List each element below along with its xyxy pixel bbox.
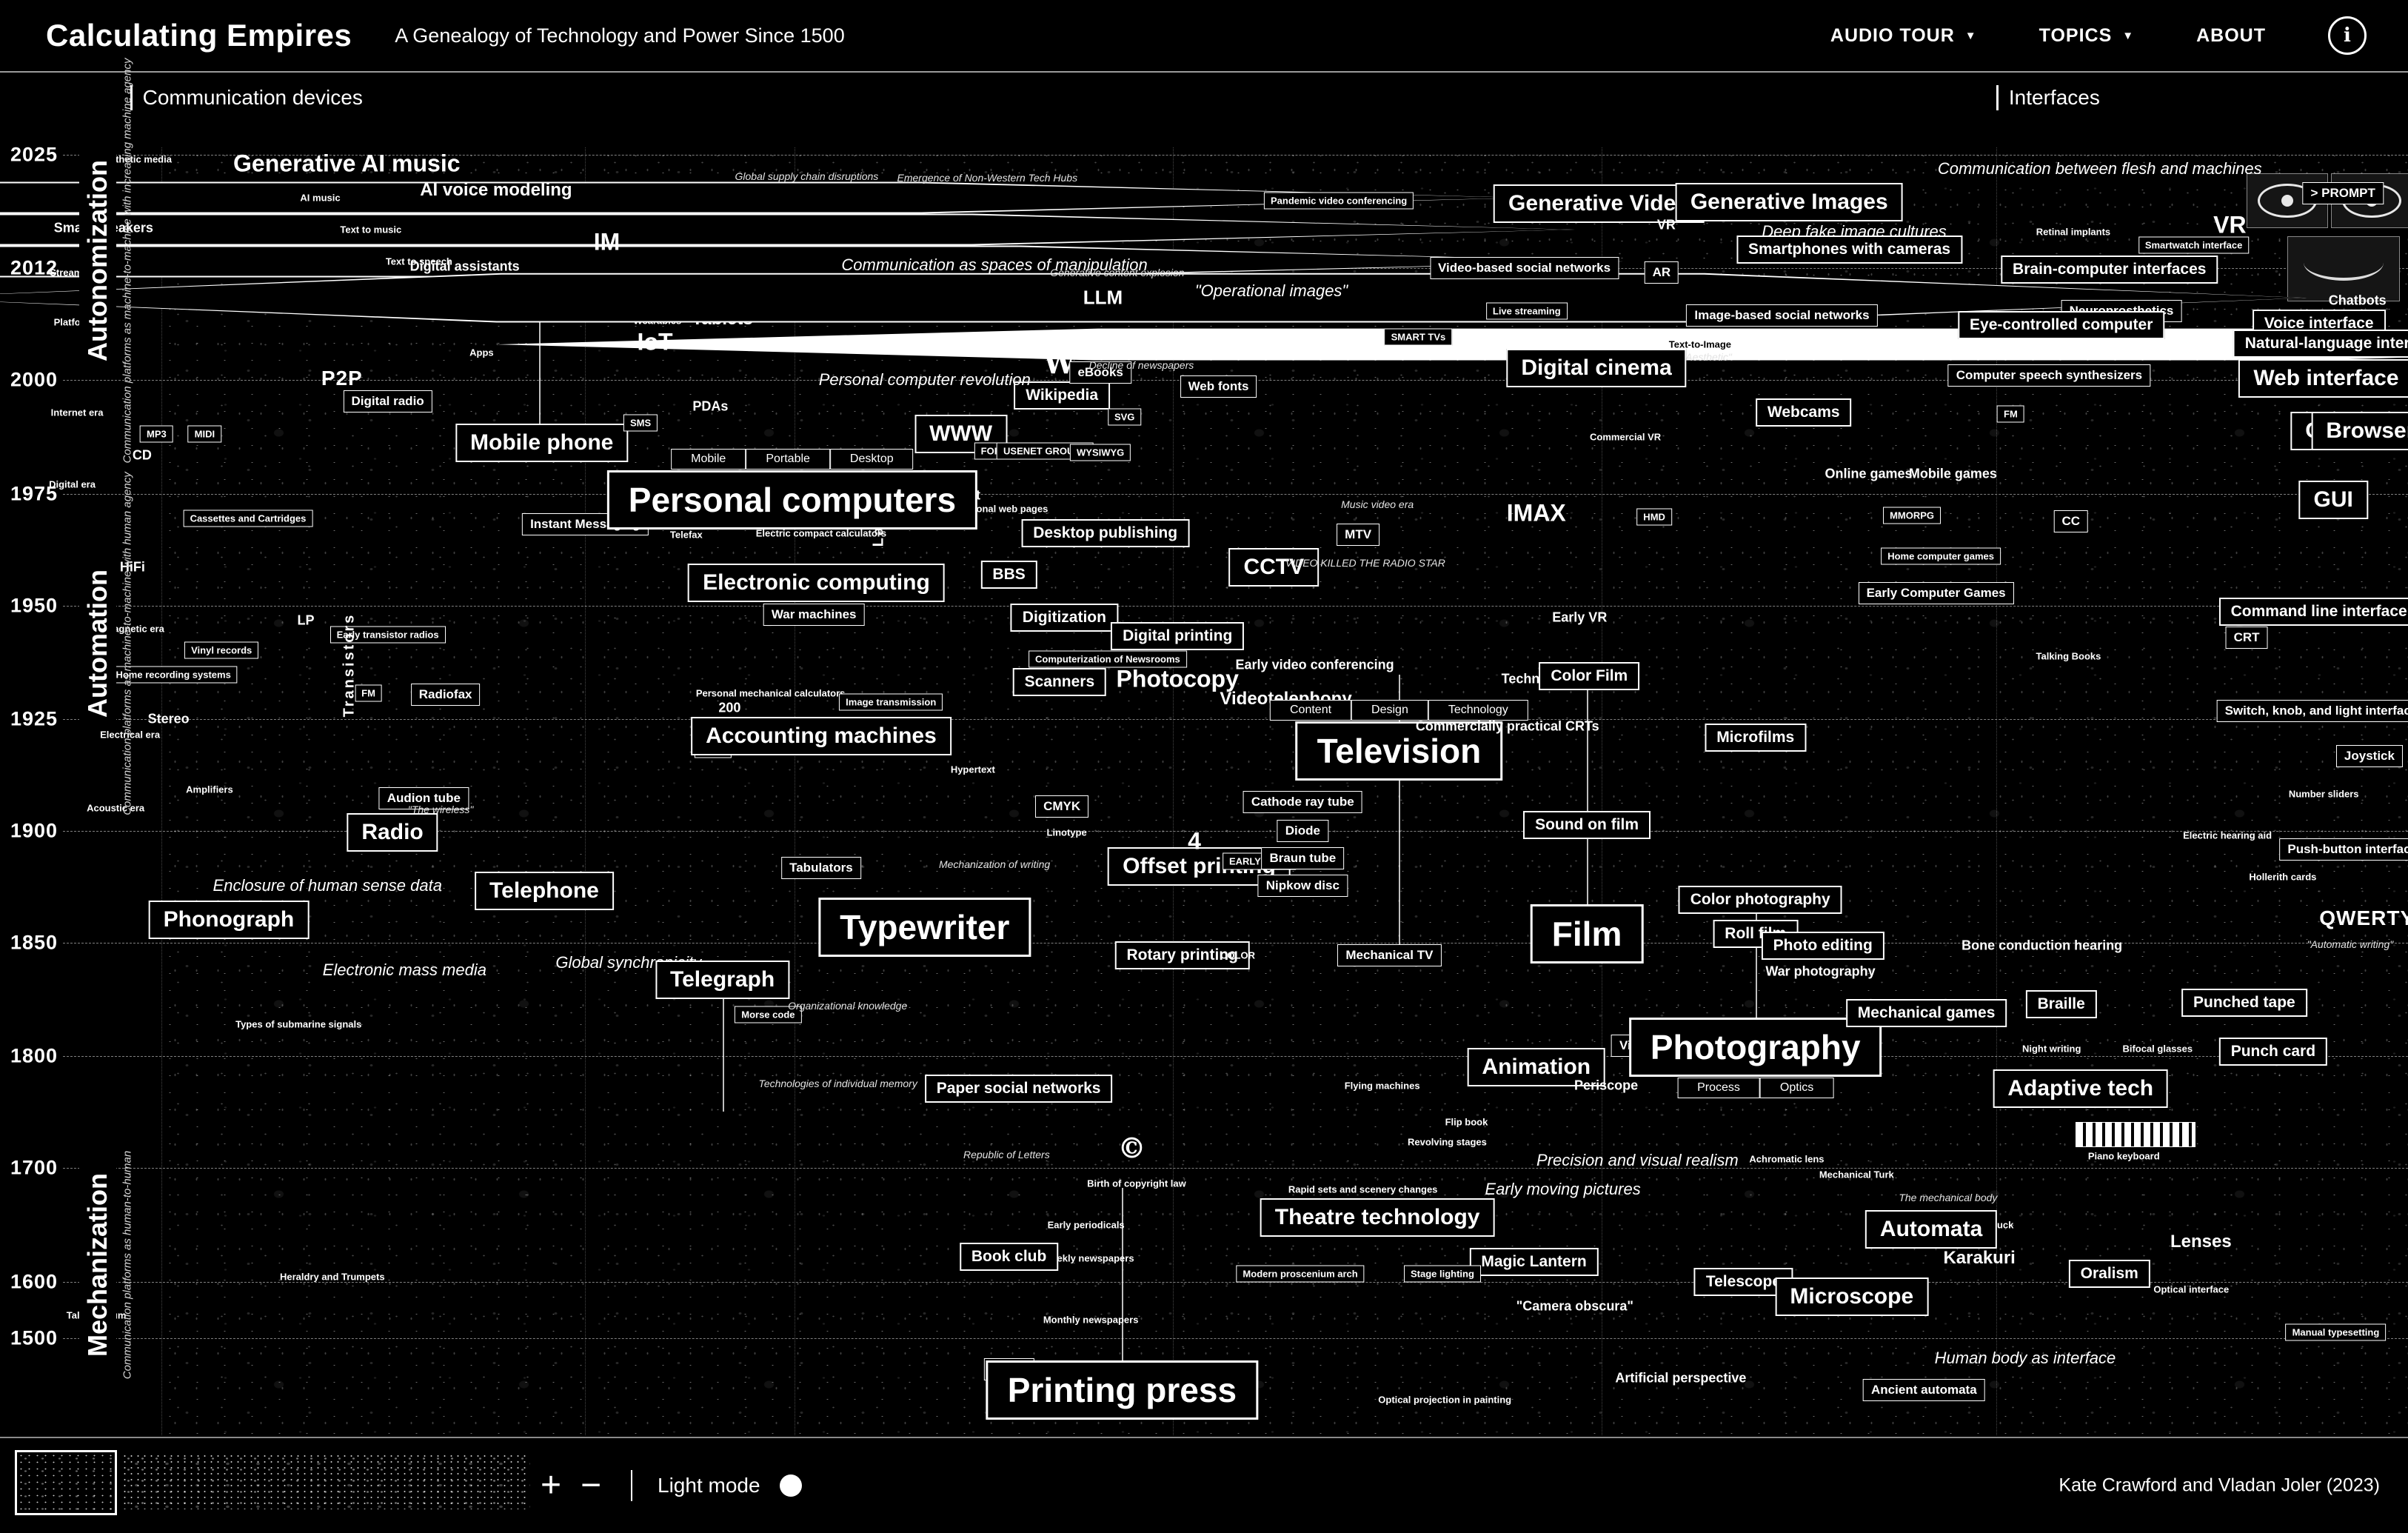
year-label-2000: 2000	[10, 369, 58, 392]
map-node-cd: CD	[133, 447, 152, 463]
map-node-bbs: BBS	[980, 561, 1037, 589]
map-node-magic-lantern: Magic Lantern	[1469, 1248, 1598, 1276]
map-node-hypertext: Hypertext	[951, 764, 995, 775]
map-node-video-killed-the-radio-star: VIDEO KILLED THE RADIO STAR	[1285, 557, 1445, 569]
map-canvas[interactable]: 2025201220001975195019251900185018001700…	[0, 0, 2408, 1533]
map-node-revolving-stages: Revolving stages	[1408, 1137, 1487, 1148]
era-subtitle-automation: Communication platforms as machine-to-ma…	[121, 472, 134, 816]
map-node-computer-speech-synthesizers: Computer speech synthesizers	[1948, 364, 2150, 387]
map-node-early-video-conferencing: Early video conferencing	[1236, 658, 1394, 673]
node-tab-optics: Optics	[1760, 1078, 1833, 1098]
map-node-telephone: Telephone	[475, 872, 614, 910]
map-node-hollerith-cards: Hollerith cards	[2249, 872, 2316, 883]
map-node-stereo: Stereo	[148, 711, 190, 727]
map-node-rapid-sets-and-scenery-changes: Rapid sets and scenery changes	[1288, 1184, 1438, 1195]
year-gridline-1925	[63, 719, 2408, 720]
map-node-retinal-implants: Retinal implants	[2036, 226, 2110, 237]
year-label-1500: 1500	[10, 1327, 58, 1350]
piano-keyboard-graphic	[2076, 1122, 2195, 1147]
map-node-diode: Diode	[1277, 820, 1328, 842]
map-node-gui: GUI	[2299, 481, 2368, 519]
map-node-bifocal-glasses: Bifocal glasses	[2122, 1043, 2193, 1054]
map-node-optical-projection-in-painting: Optical projection in painting	[1378, 1394, 1511, 1405]
map-node-electronic-computing: Electronic computing	[688, 564, 945, 602]
map-node-browsers: Browsers	[2311, 412, 2408, 450]
map-node-mtv: MTV	[1337, 524, 1379, 546]
map-node-adaptive-tech: Adaptive tech	[1993, 1069, 2168, 1108]
node-tab-desktop: Desktop	[830, 449, 914, 470]
map-node-karakuri: Karakuri	[1943, 1248, 2015, 1269]
column-divider-0	[161, 147, 162, 1435]
map-node-monthly-newspapers: Monthly newspapers	[1043, 1315, 1139, 1326]
map-node-photography: PhotographyProcessOptics	[1629, 1018, 1882, 1077]
map-node-war-photography: War photography	[1765, 964, 1875, 980]
map-node-amplifiers: Amplifiers	[186, 784, 233, 795]
toggle-circle-icon	[780, 1474, 802, 1497]
era-subtitle-mechanization: Communication platforms as human-to-huma…	[121, 1151, 134, 1379]
map-node-typewriter: Typewriter	[818, 898, 1031, 957]
minimap-thumbnail[interactable]	[121, 1453, 530, 1509]
map-node-cc: CC	[2053, 510, 2088, 532]
map-node-internet-era: Internet era	[51, 407, 104, 418]
map-node-artificial-perspective: Artificial perspective	[1615, 1370, 1746, 1386]
map-node-flip-book: Flip book	[1445, 1117, 1488, 1128]
map-node-punched-tape: Punched tape	[2181, 989, 2307, 1017]
map-node-desktop-publishing: Desktop publishing	[1021, 519, 1189, 547]
zoom-out-button[interactable]: −	[581, 1468, 601, 1503]
map-node-personal-computer-revolution: Personal computer revolution	[819, 370, 1031, 390]
year-label-1800: 1800	[10, 1045, 58, 1068]
map-node-smartphones-with-cameras: Smartphones with cameras	[1736, 236, 1962, 264]
map-node-online-games: Online games	[1825, 466, 1913, 481]
map-node-200: 200	[718, 701, 740, 716]
map-node-number-sliders: Number sliders	[2289, 789, 2359, 800]
map-node-global-supply-chain-disruptions: Global supply chain disruptions	[735, 170, 879, 182]
year-gridline-1700	[63, 1168, 2408, 1169]
footer-bar: + − Light mode Kate Crawford and Vladan …	[0, 1437, 2408, 1533]
page: Calculating Empires A Genealogy of Techn…	[0, 0, 2408, 1533]
map-node-early-computer-games: Early Computer Games	[1859, 582, 2014, 604]
map-node-manual-typesetting: Manual typesetting	[2286, 1323, 2387, 1340]
map-node-lenses: Lenses	[2170, 1232, 2232, 1252]
map-node-cathode-ray-tube: Cathode ray tube	[1243, 791, 1362, 813]
map-node-personal-mechanical-calculators: Personal mechanical calculators	[696, 687, 846, 698]
map-node-lp: LP	[297, 613, 314, 629]
map-node-glyph: ©	[1117, 1132, 1146, 1165]
map-node-commercial-vr: Commercial VR	[1590, 431, 1661, 442]
map-node-image-transmission: Image transmission	[839, 694, 943, 711]
map-node-early-moving-pictures: Early moving pictures	[1485, 1180, 1640, 1199]
map-node-nipkow-disc: Nipkow disc	[1258, 875, 1348, 897]
map-node-4: 4	[1188, 828, 1201, 855]
map-node-bone-conduction-hearing: Bone conduction hearing	[1961, 938, 2122, 954]
map-node-im: IM	[594, 229, 621, 256]
map-node-brain-computer-interfaces: Brain-computer interfaces	[2001, 255, 2218, 284]
map-node-vr: VR	[2213, 212, 2246, 239]
map-node-qwerty: QWERTY	[2319, 906, 2408, 930]
map-node-scanners: Scanners	[1013, 668, 1107, 696]
map-node-paper-social-networks: Paper social networks	[925, 1075, 1113, 1103]
map-node-linotype: Linotype	[1047, 827, 1087, 838]
map-node-mechanical-tv: Mechanical TV	[1337, 944, 1441, 966]
map-node-imax: IMAX	[1507, 500, 1566, 527]
map-node-fm: FM	[1997, 405, 2024, 422]
map-node-human-body-as-interface: Human body as interface	[1935, 1349, 2116, 1368]
map-node-accounting-machines: Accounting machines	[691, 717, 952, 755]
map-node-pdas: PDAs	[692, 398, 728, 414]
year-gridline-1600	[63, 1282, 2408, 1283]
era-subtitle-autonomization: Communication platforms as machine-to-ma…	[121, 58, 134, 463]
footer-divider	[631, 1470, 632, 1501]
node-tabs-television: ContentDesignTechnology	[1270, 700, 1528, 721]
map-node-photo-editing: Photo editing	[1762, 932, 1884, 960]
map-node-stage-lighting: Stage lighting	[1404, 1266, 1481, 1283]
map-node-radiofax: Radiofax	[411, 684, 481, 706]
map-node-printing-press: Printing press	[986, 1360, 1258, 1420]
map-node-home-computer-games: Home computer games	[1881, 548, 2001, 565]
map-node-wysiwyg: WYSIWYG	[1070, 444, 1131, 461]
map-node-push-button-interface: Push-button interface	[2279, 838, 2408, 861]
map-node-microscope: Microscope	[1775, 1277, 1928, 1316]
map-node-modern-proscenium-arch: Modern proscenium arch	[1236, 1266, 1364, 1283]
map-node-early-vr: Early VR	[1552, 610, 1607, 626]
map-node-smart-tvs: SMART TVs	[1385, 329, 1453, 346]
map-node-theatre-technology: Theatre technology	[1260, 1198, 1495, 1237]
map-node-communication-between-flesh-and-machines: Communication between flesh and machines	[1938, 159, 2262, 178]
map-node-webcams: Webcams	[1756, 398, 1852, 427]
map-node-digital-assistants: Digital assistants	[410, 259, 520, 275]
node-tab-design: Design	[1351, 700, 1428, 721]
map-node-braille: Braille	[2026, 990, 2097, 1018]
map-node-sms: SMS	[623, 415, 658, 432]
map-node-automatic-writing: "Automatic writing"	[2307, 938, 2394, 950]
map-node-sound-on-film: Sound on film	[1523, 811, 1651, 839]
map-node-telegraph: Telegraph	[655, 961, 789, 999]
map-node-precision-and-visual-realism: Precision and visual realism	[1536, 1151, 1739, 1170]
map-node-mp3: MP3	[140, 425, 173, 442]
map-node-color-photography: Color photography	[1679, 886, 1842, 914]
year-label-1900: 1900	[10, 819, 58, 842]
map-node-phonograph: Phonograph	[149, 901, 310, 939]
year-label-1975: 1975	[10, 482, 58, 505]
map-node-digital-radio: Digital radio	[343, 390, 432, 413]
map-node-apps: Apps	[469, 347, 494, 358]
map-node-p2p: P2P	[321, 367, 363, 390]
map-node-oralism: Oralism	[2069, 1260, 2150, 1288]
map-node-video-based-social-networks: Video-based social networks	[1430, 257, 1619, 279]
map-node-automata: Automata	[1865, 1210, 1997, 1249]
map-node-book-club: Book club	[960, 1243, 1059, 1271]
map-node-joystick: Joystick	[2336, 745, 2403, 767]
map-node-vinyl-records: Vinyl records	[184, 641, 258, 658]
year-gridline-1950	[63, 606, 2408, 607]
map-node-command-line-interface: Command line interface	[2219, 598, 2408, 626]
map-node-acoustic-era: Acoustic era	[87, 802, 144, 813]
map-node-early-periodicals: Early periodicals	[1048, 1219, 1125, 1230]
map-node-telefax: Telefax	[670, 530, 703, 541]
map-node-natural-language-interface: Natural-language interface	[2233, 330, 2408, 358]
light-mode-toggle[interactable]: Light mode	[658, 1474, 802, 1497]
map-node-prompt: > PROMPT	[2303, 182, 2384, 204]
light-mode-label: Light mode	[658, 1474, 760, 1497]
map-node-pandemic-video-conferencing: Pandemic video conferencing	[1264, 193, 1414, 210]
map-node-punch-card: Punch card	[2219, 1038, 2327, 1066]
map-node-mobile-games: Mobile games	[1909, 466, 1997, 481]
map-node-eye-controlled-computer: Eye-controlled computer	[1958, 311, 2164, 339]
map-node-color-film: Color Film	[1539, 662, 1639, 690]
year-gridline-1500	[63, 1338, 2408, 1339]
map-node-hmd: HMD	[1636, 508, 1672, 525]
map-node-radio: Radio	[347, 813, 438, 852]
map-node-optical-interface: Optical interface	[2153, 1283, 2229, 1295]
year-label-1950: 1950	[10, 594, 58, 617]
map-node-film: Film	[1531, 904, 1644, 963]
map-node-generative-images: Generative Images	[1676, 183, 1903, 221]
map-node-chatbots: Chatbots	[2329, 293, 2387, 308]
node-tab-process: Process	[1677, 1078, 1760, 1098]
year-label-2025: 2025	[10, 144, 58, 167]
year-label-1700: 1700	[10, 1157, 58, 1180]
year-gridline-1800	[63, 1056, 2408, 1057]
map-node-cassettes-and-cartridges: Cassettes and Cartridges	[184, 510, 313, 527]
minimap-viewport[interactable]	[15, 1450, 117, 1515]
map-node-birth-of-copyright-law: Birth of copyright law	[1087, 1178, 1186, 1189]
map-node-talking-books: Talking Books	[2036, 650, 2101, 661]
node-tab-mobile: Mobile	[671, 449, 746, 470]
map-node-image-based-social-networks: Image-based social networks	[1686, 304, 1877, 327]
year-label-1925: 1925	[10, 707, 58, 730]
map-node-emergence-of-non-western-tech-hubs: Emergence of Non-Western Tech Hubs	[897, 172, 1078, 184]
map-node-vr: VR	[1657, 218, 1676, 233]
map-node-mechanization-of-writing: Mechanization of writing	[939, 858, 1050, 870]
map-node-live-streaming: Live streaming	[1486, 303, 1568, 320]
era-label-autonomization: Autonomization	[79, 153, 116, 369]
map-node-midi: MIDI	[188, 425, 221, 442]
map-node-decline-of-newspapers: Decline of newspapers	[1089, 359, 1194, 371]
map-node-fm: FM	[355, 684, 382, 701]
map-node-music-video-era: Music video era	[1341, 498, 1414, 510]
map-node-digitization: Digitization	[1011, 604, 1118, 632]
year-gridline-1975	[63, 494, 2408, 495]
map-node-digital-cinema: Digital cinema	[1506, 349, 1686, 387]
map-node-war-machines: War machines	[763, 604, 865, 626]
map-node-republic-of-letters: Republic of Letters	[963, 1149, 1050, 1160]
node-tab-technology: Technology	[1428, 700, 1528, 721]
map-node-periscope: Periscope	[1574, 1078, 1638, 1093]
map-node-braun-tube: Braun tube	[1261, 847, 1344, 869]
map-node-night-writing: Night writing	[2022, 1043, 2081, 1054]
node-tab-content: Content	[1270, 700, 1351, 721]
node-tab-portable: Portable	[746, 449, 830, 470]
zoom-in-button[interactable]: +	[541, 1468, 561, 1503]
map-node-cmyk: CMYK	[1035, 795, 1088, 818]
map-node-types-of-submarine-signals: Types of submarine signals	[235, 1018, 361, 1029]
map-node-mmorpg: MMORPG	[1883, 507, 1941, 524]
map-node-tabulators: Tabulators	[781, 857, 861, 879]
map-node-operational-images: "Operational images"	[1195, 281, 1348, 301]
node-tabs-photography: ProcessOptics	[1677, 1078, 1833, 1098]
map-node-piano-keyboard: Piano keyboard	[2088, 1150, 2160, 1161]
node-tabs-personal-computers: MobilePortableDesktop	[671, 449, 913, 470]
map-node-crt: CRT	[2226, 627, 2268, 649]
map-node-digital-printing: Digital printing	[1111, 622, 1244, 650]
map-node-camera-obscura: "Camera obscura"	[1516, 1298, 1633, 1314]
map-node-mechanical-turk: Mechanical Turk	[1819, 1169, 1894, 1180]
era-label-automation: Automation	[79, 562, 116, 725]
map-node-heraldry-and-trumpets: Heraldry and Trumpets	[280, 1272, 385, 1283]
map-node-color: COLOR	[1220, 949, 1255, 961]
map-node-achromatic-lens: Achromatic lens	[1749, 1153, 1824, 1164]
map-node-technologies-of-individual-memory: Technologies of individual memory	[759, 1078, 917, 1089]
map-node-svg: SVG	[1108, 409, 1141, 426]
map-node-microfilms: Microfilms	[1705, 724, 1806, 752]
attribution: Kate Crawford and Vladan Joler (2023)	[2058, 1475, 2380, 1497]
map-node-electronic-mass-media: Electronic mass media	[323, 961, 486, 980]
map-node-generative-content-explosion: Generative content explosion	[1050, 267, 1184, 278]
map-node-ancient-automata: Ancient automata	[1863, 1379, 1985, 1401]
map-node-transistors: Transistors	[341, 613, 358, 718]
map-node-personal-computers: Personal computersMobilePortableDesktop	[607, 470, 977, 530]
map-node-ai-voice-modeling: AI voice modeling	[420, 180, 572, 201]
map-node-mobile-phone: Mobile phone	[455, 424, 628, 462]
year-label-1600: 1600	[10, 1270, 58, 1293]
map-node-commercially-practical-crts: Commercially practical CRTs	[1416, 719, 1599, 735]
map-node-flying-machines: Flying machines	[1345, 1080, 1420, 1091]
map-node-generative-ai-music: Generative AI music	[233, 150, 461, 178]
map-node-mechanical-games: Mechanical games	[1846, 999, 2007, 1027]
map-node-smartwatch-interface: Smartwatch interface	[2138, 237, 2250, 254]
map-node-ar: AR	[1645, 261, 1679, 284]
map-node-organizational-knowledge: Organizational knowledge	[788, 1000, 907, 1012]
map-node-web-fonts: Web fonts	[1180, 375, 1257, 398]
year-label-2012: 2012	[10, 257, 58, 280]
map-node-electric-compact-calculators: Electric compact calculators	[756, 528, 886, 539]
map-node-switch-knob-and-light-interface: Switch, knob, and light interface	[2217, 700, 2408, 722]
map-node-the-mechanical-body: The mechanical body	[1899, 1192, 1997, 1203]
connector-line	[1122, 1188, 1123, 1387]
map-node-enclosure-of-human-sense-data: Enclosure of human sense data	[213, 876, 442, 895]
connector-line	[723, 989, 724, 1112]
year-label-1850: 1850	[10, 932, 58, 955]
map-node-electric-hearing-aid: Electric hearing aid	[2183, 830, 2272, 841]
map-node-web-interface: Web interface	[2238, 359, 2408, 398]
era-label-mechanization: Mechanization	[79, 1166, 116, 1364]
map-node-text-to-music: Text to music	[0, 214, 1575, 246]
